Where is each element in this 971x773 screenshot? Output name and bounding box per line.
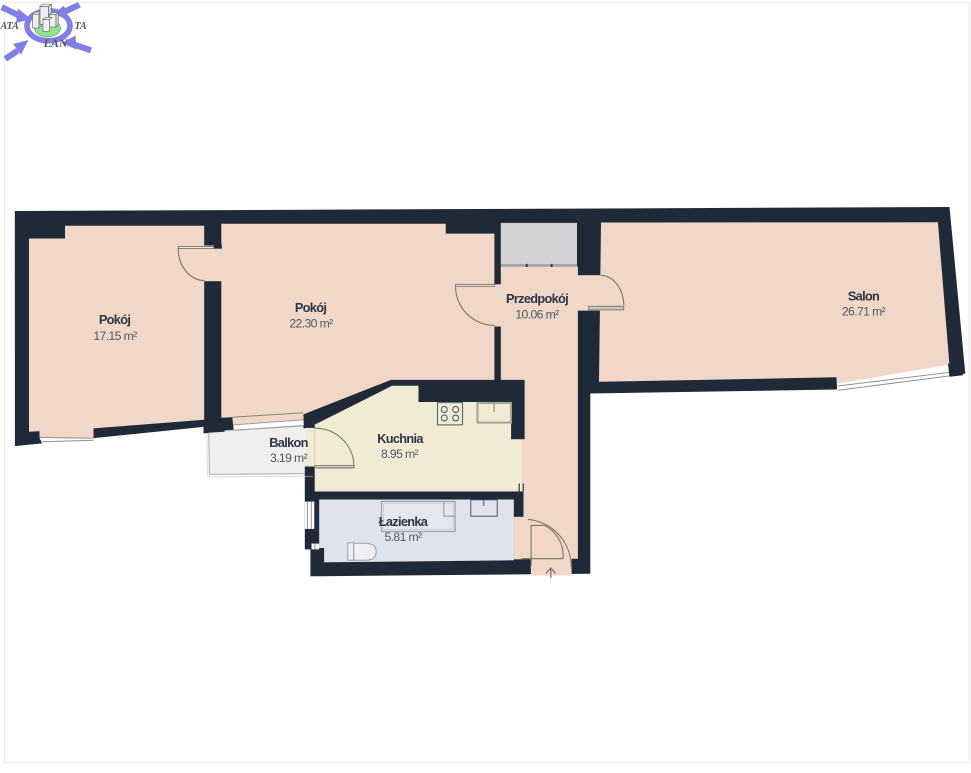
svg-text:26.71 m²: 26.71 m²: [842, 304, 886, 318]
svg-text:17.15 m²: 17.15 m²: [93, 329, 137, 343]
svg-text:ATA: ATA: [0, 21, 19, 32]
svg-text:LAN: LAN: [43, 36, 69, 50]
svg-text:3.19 m²: 3.19 m²: [270, 451, 308, 465]
svg-text:TA: TA: [75, 21, 88, 32]
svg-text:Kuchnia: Kuchnia: [377, 431, 424, 446]
svg-text:Pokój: Pokój: [99, 312, 130, 327]
svg-text:10.06 m²: 10.06 m²: [515, 307, 559, 321]
svg-text:5.81 m²: 5.81 m²: [384, 530, 422, 544]
svg-text:Salon: Salon: [848, 288, 880, 303]
svg-text:Balkon: Balkon: [269, 435, 308, 450]
svg-text:Przedpokój: Przedpokój: [506, 291, 568, 306]
svg-text:Łazienka: Łazienka: [379, 514, 429, 529]
svg-text:Pokój: Pokój: [295, 300, 326, 315]
svg-text:22.30 m²: 22.30 m²: [289, 316, 333, 330]
svg-text:8.95 m²: 8.95 m²: [381, 447, 419, 461]
